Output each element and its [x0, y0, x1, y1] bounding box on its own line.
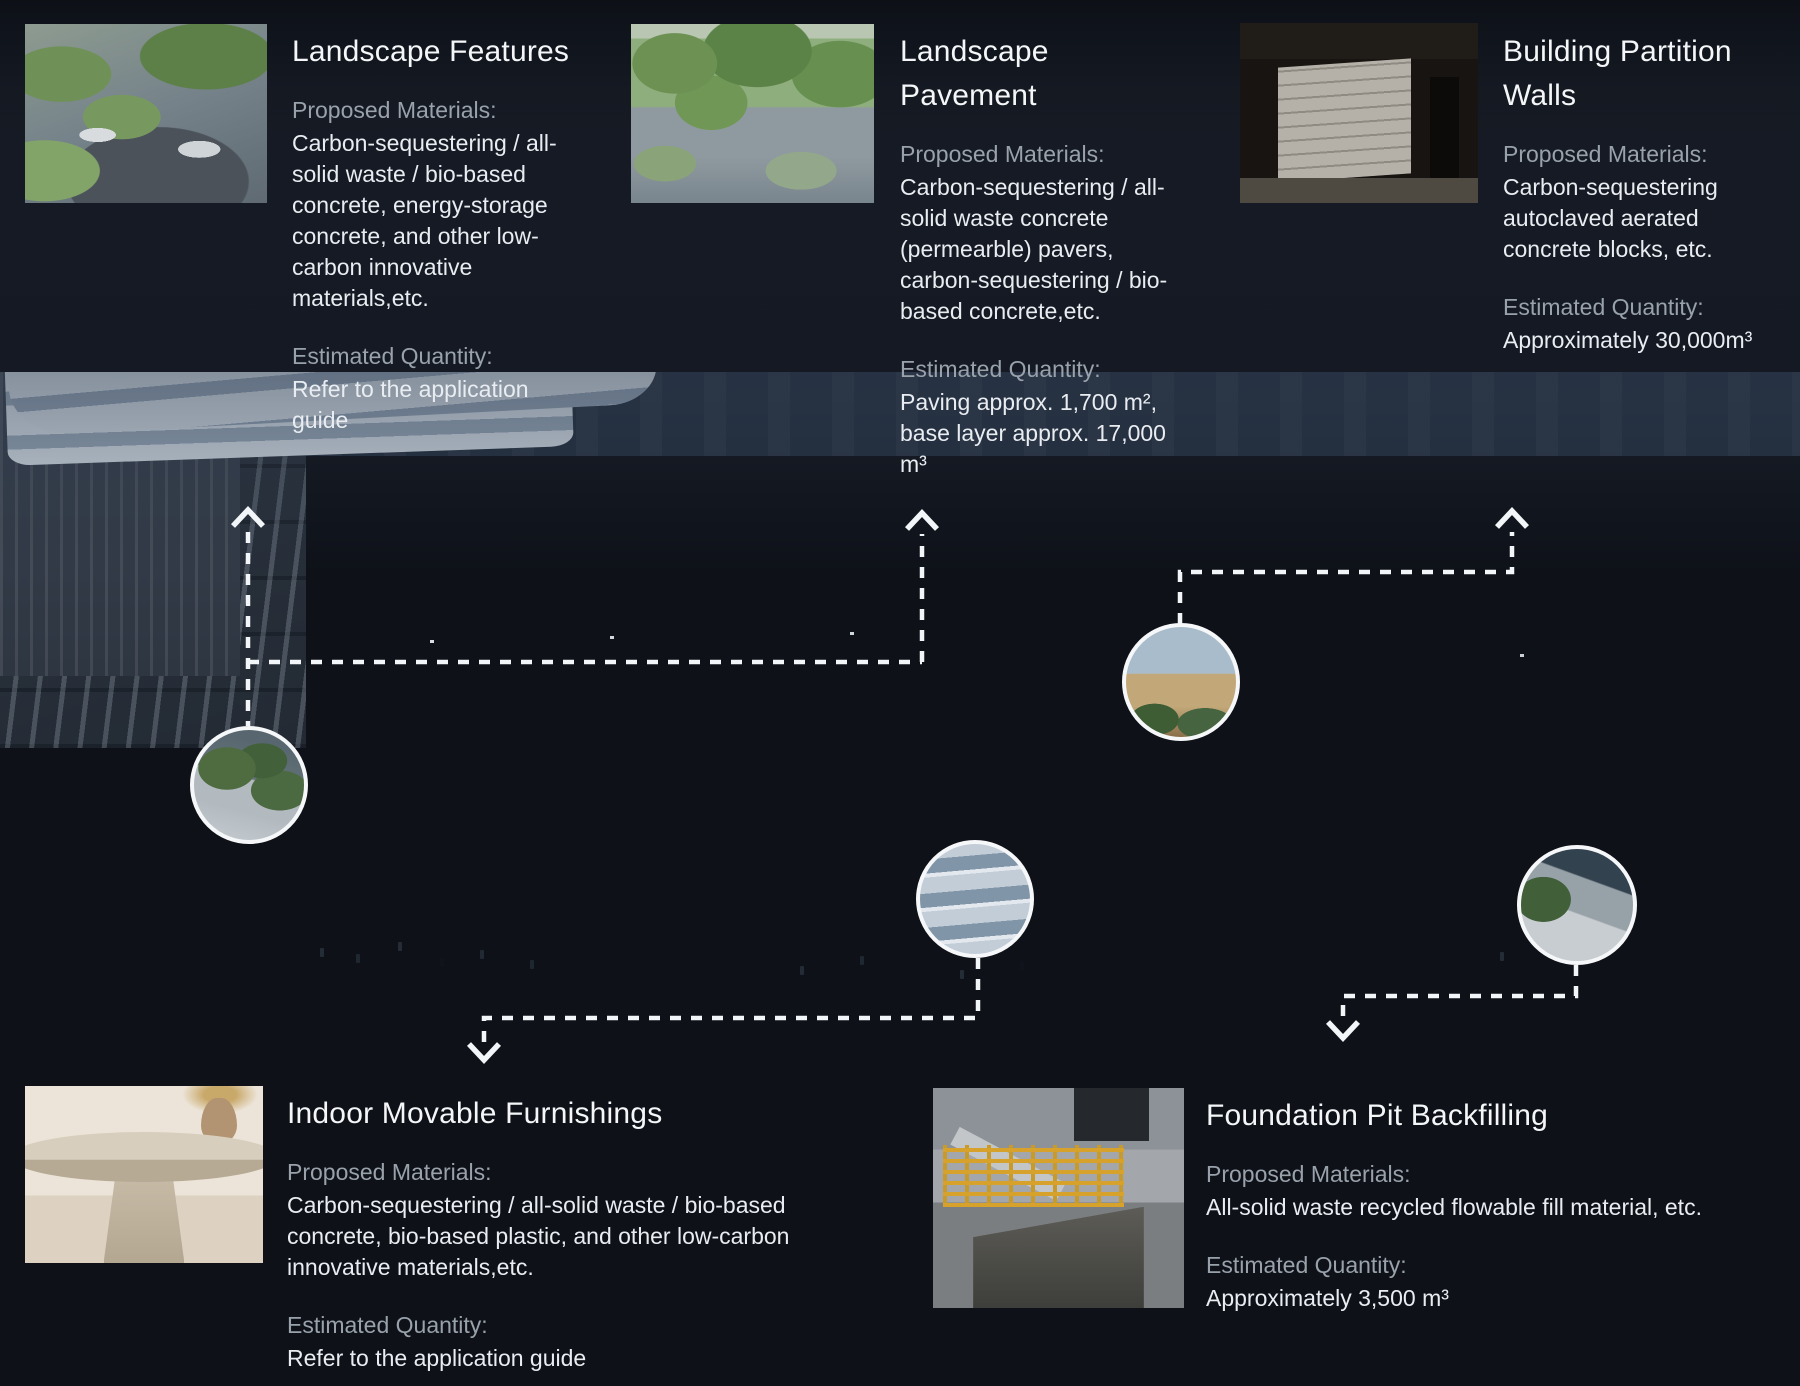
callout-furnishings [469, 958, 978, 1060]
magnifier-landscape [190, 726, 308, 844]
quantity-value: Approximately 3,500 m³ [1206, 1283, 1766, 1314]
materials-value: Carbon-sequestering / all-solid waste / … [287, 1190, 819, 1283]
materials-label: Proposed Materials: [1503, 139, 1775, 170]
quantity-value: Refer to the application guide [292, 374, 574, 436]
materials-label: Proposed Materials: [292, 95, 574, 126]
materials-value: Carbon-sequestering autoclaved aerated c… [1503, 172, 1775, 265]
materials-label: Proposed Materials: [1206, 1159, 1766, 1190]
concrete-beam [1240, 23, 1478, 59]
card-landscape-features: Landscape Features Proposed Materials: C… [292, 30, 574, 436]
quantity-label: Estimated Quantity: [287, 1310, 819, 1341]
concrete-floor [1240, 178, 1478, 203]
infographic-canvas: Landscape Features Proposed Materials: C… [0, 0, 1800, 1386]
materials-label: Proposed Materials: [900, 139, 1172, 170]
dashed-connector [1343, 965, 1576, 1024]
quantity-label: Estimated Quantity: [900, 354, 1172, 385]
partition-walls-photo [1240, 23, 1478, 203]
landscape-pavement-photo [631, 24, 874, 203]
magnifier-interior [1122, 623, 1240, 741]
quantity-value: Paving approx. 1,700 m², base layer appr… [900, 387, 1172, 480]
quantity-label: Estimated Quantity: [292, 341, 574, 372]
callout-backfilling [1328, 965, 1576, 1038]
furnishings-photo [25, 1086, 263, 1263]
card-foundation-backfilling: Foundation Pit Backfilling Proposed Mate… [1206, 1094, 1766, 1314]
quantity-label: Estimated Quantity: [1503, 292, 1775, 323]
distant-boats [430, 640, 434, 643]
card-title: Indoor Movable Furnishings [287, 1092, 819, 1136]
site-panel [1074, 1088, 1149, 1141]
landscape-features-photo [25, 24, 267, 203]
dashed-connector [484, 958, 978, 1046]
materials-value: Carbon-sequestering / all-solid waste / … [292, 128, 574, 314]
materials-value: Carbon-sequestering / all-solid waste co… [900, 172, 1172, 327]
table-pedestal [104, 1167, 185, 1263]
safety-fence [943, 1145, 1124, 1207]
pedestrians [320, 948, 324, 957]
card-title: Landscape Pavement [900, 30, 1172, 118]
foundation-pit-photo [933, 1088, 1184, 1308]
card-title: Building Partition Walls [1503, 30, 1775, 118]
quantity-value: Refer to the application guide [287, 1343, 819, 1374]
materials-label: Proposed Materials: [287, 1157, 819, 1188]
magnifier-pavement [1517, 845, 1637, 965]
table-top [25, 1132, 263, 1182]
quantity-label: Estimated Quantity: [1206, 1250, 1766, 1281]
arrow-down-icon [1328, 1022, 1358, 1038]
card-partition-walls: Building Partition Walls Proposed Materi… [1503, 30, 1775, 356]
card-indoor-furnishings: Indoor Movable Furnishings Proposed Mate… [287, 1092, 819, 1374]
arrow-down-icon [469, 1044, 499, 1060]
door-opening [1430, 77, 1459, 181]
materials-value: All-solid waste recycled flowable fill m… [1206, 1192, 1766, 1223]
quantity-value: Approximately 30,000m³ [1503, 325, 1775, 356]
block-wall [1278, 58, 1411, 183]
card-landscape-pavement: Landscape Pavement Proposed Materials: C… [900, 30, 1172, 480]
excavation-pit [973, 1207, 1144, 1308]
magnifier-facade [916, 840, 1034, 958]
card-title: Landscape Features [292, 30, 574, 74]
card-title: Foundation Pit Backfilling [1206, 1094, 1766, 1138]
